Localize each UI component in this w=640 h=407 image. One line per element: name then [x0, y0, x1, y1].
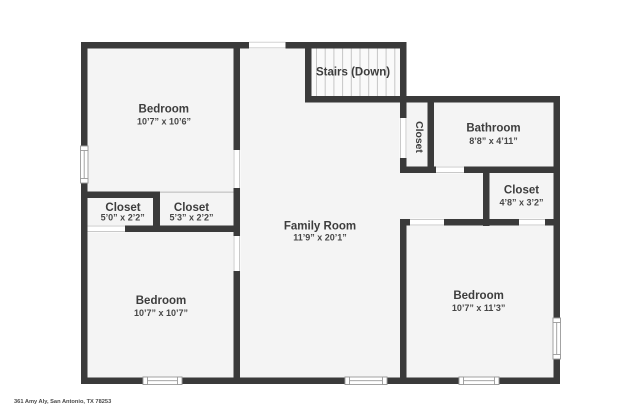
svg-text:Closet: Closet — [504, 185, 539, 197]
svg-text:5’0” x 2’2”: 5’0” x 2’2” — [101, 213, 145, 223]
svg-text:Stairs (Down): Stairs (Down) — [316, 66, 390, 78]
svg-text:10’7” x 10’7”: 10’7” x 10’7” — [134, 308, 188, 318]
svg-text:Bathroom: Bathroom — [466, 123, 520, 135]
svg-text:Bedroom: Bedroom — [453, 290, 503, 302]
svg-text:Closet: Closet — [413, 121, 424, 153]
svg-text:5’3” x 2’2”: 5’3” x 2’2” — [169, 213, 213, 223]
svg-text:10’7” x 10’6”: 10’7” x 10’6” — [137, 116, 191, 126]
svg-text:4’8” x 3’2”: 4’8” x 3’2” — [499, 198, 543, 208]
svg-text:Bedroom: Bedroom — [139, 104, 189, 116]
svg-text:Family Room: Family Room — [284, 220, 356, 232]
svg-text:361 Amy Aly, San Antonio, TX 7: 361 Amy Aly, San Antonio, TX 78253 — [14, 399, 111, 405]
svg-text:10’7” x 11’3”: 10’7” x 11’3” — [452, 303, 506, 313]
svg-text:8’8” x 4’11”: 8’8” x 4’11” — [469, 136, 518, 146]
svg-text:11’9” x 20’1”: 11’9” x 20’1” — [293, 232, 347, 242]
svg-text:Bedroom: Bedroom — [136, 295, 186, 307]
